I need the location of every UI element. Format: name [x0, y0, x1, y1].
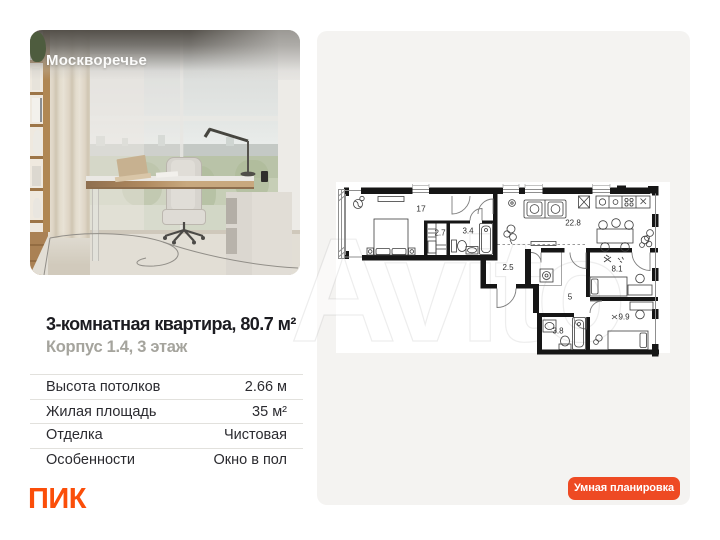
svg-text:2.7: 2.7 [434, 229, 446, 238]
svg-text:2.5: 2.5 [502, 263, 514, 272]
svg-text:8.1: 8.1 [611, 265, 623, 274]
svg-text:3.4: 3.4 [462, 227, 474, 236]
svg-text:9.9: 9.9 [618, 313, 630, 322]
svg-text:17: 17 [416, 204, 426, 214]
svg-text:22.8: 22.8 [565, 219, 581, 228]
svg-text:3.8: 3.8 [552, 327, 564, 336]
svg-text:5: 5 [568, 293, 573, 302]
